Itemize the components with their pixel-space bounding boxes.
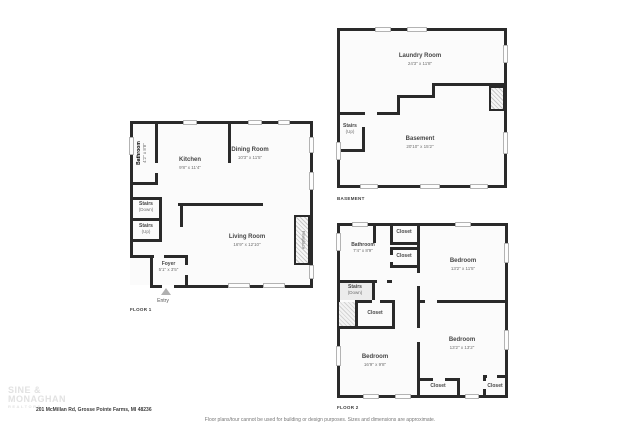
room-dims: 13'2" x 11'5" — [433, 266, 493, 272]
wall — [373, 223, 376, 243]
room-label-closet-top: Closet — [388, 229, 420, 235]
floor1-plan: Bathroom 4'2" x 8'8" Kitchen 9'8" x 11'4… — [128, 117, 323, 322]
window — [455, 222, 471, 227]
wall — [185, 255, 188, 265]
room-dims: (Down) — [130, 207, 162, 213]
room-label-closet-mid: Closet — [357, 310, 393, 316]
room-dims: 7'4" x 8'9" — [337, 248, 389, 254]
wall — [417, 300, 425, 303]
room-label-closet-bottom: Closet — [421, 383, 455, 389]
entry-label: Entry — [148, 298, 178, 304]
realtor-watermark-logo: SINE & MONAGHAN REALTORS — [8, 386, 66, 409]
wall — [130, 239, 162, 242]
room-label-laundry-room: Laundry Room 24'3" x 11'8" — [370, 53, 470, 66]
wall — [390, 265, 420, 268]
room-dims: (Up) — [337, 129, 363, 135]
window — [352, 222, 368, 227]
property-address: 201 McMillan Rd, Grosse Pointe Farms, MI… — [36, 407, 152, 413]
window — [309, 172, 314, 190]
wall — [483, 375, 486, 381]
window — [360, 184, 378, 189]
window — [395, 394, 411, 399]
wall — [337, 149, 365, 152]
room-dims: 16'9" x 12'10" — [217, 242, 277, 248]
room-name: Basement — [370, 136, 470, 144]
basement-plan: Laundry Room 24'3" x 11'8" Basement 20'1… — [335, 20, 510, 205]
wall — [417, 286, 420, 328]
room-name: Bedroom — [432, 337, 492, 345]
wall — [437, 300, 508, 303]
window — [503, 132, 508, 154]
room-label-basement: Basement 20'10" x 15'2" — [370, 136, 470, 149]
wall — [420, 378, 433, 381]
room-name: Closet — [388, 229, 420, 235]
wall — [390, 242, 420, 245]
window — [263, 283, 285, 288]
room-label-closet-upper: Closet — [388, 253, 420, 259]
window — [375, 27, 391, 32]
room-name: Bedroom — [433, 258, 493, 266]
window — [420, 184, 440, 189]
wall — [390, 247, 420, 250]
wall — [130, 197, 162, 200]
room-name: Fireplace — [301, 231, 306, 250]
entry-arrow-icon — [161, 288, 171, 295]
window — [336, 346, 341, 366]
room-dims: (Up) — [130, 229, 162, 235]
wall — [497, 375, 508, 378]
room-label-closet-corner: Closet — [482, 383, 508, 389]
wall — [130, 218, 162, 221]
window — [309, 137, 314, 153]
window — [407, 27, 427, 32]
room-label-foyer: Foyer 5'1" x 3'5" — [152, 261, 185, 273]
room-name: Closet — [482, 383, 508, 389]
window — [503, 45, 508, 63]
storage-hatch — [489, 86, 505, 111]
window — [278, 120, 290, 125]
floor-plan-page: Bathroom 4'2" x 8'8" Kitchen 9'8" x 11'4… — [0, 0, 640, 426]
window — [336, 142, 341, 160]
room-label-stairs-up: Stairs (Up) — [337, 123, 363, 135]
room-label-bedroom-right: Bedroom 13'2" x 13'2" — [432, 337, 492, 350]
room-label-stairs-down: Stairs (Down) — [337, 284, 373, 296]
wall — [337, 112, 365, 115]
floor2-tag: FLOOR 2 — [337, 405, 359, 410]
room-dims: 16'9" x 9'8" — [345, 362, 405, 368]
window — [363, 394, 379, 399]
room-label-stairs-down: Stairs (Down) — [130, 201, 162, 213]
room-dims: 5'1" x 3'5" — [152, 267, 185, 273]
floor2-plan: Bathroom 7'4" x 8'9" Closet Closet Bedro… — [335, 218, 513, 416]
window — [129, 137, 134, 155]
room-name: Laundry Room — [370, 53, 470, 61]
room-dims: 9'8" x 11'4" — [160, 165, 220, 171]
wall — [358, 300, 372, 303]
wall — [337, 326, 395, 329]
room-dims: 13'2" x 13'2" — [432, 345, 492, 351]
watermark-line2: MONAGHAN — [8, 395, 66, 404]
window — [248, 120, 262, 125]
window — [183, 120, 197, 125]
room-name: Closet — [421, 383, 455, 389]
wall — [417, 342, 420, 398]
room-label-stairs-up: Stairs (Up) — [130, 223, 162, 235]
room-label-kitchen: Kitchen 9'8" x 11'4" — [160, 157, 220, 170]
wall — [397, 95, 435, 98]
room-name: Living Room — [217, 234, 277, 242]
stairs-hatch — [339, 302, 355, 326]
window — [309, 265, 314, 279]
room-label-fireplace: Fireplace — [296, 217, 306, 263]
wall — [178, 203, 263, 206]
wall — [130, 182, 158, 185]
window — [470, 184, 488, 189]
room-dims: 10'3" x 11'5" — [220, 155, 280, 161]
disclaimer-text: Floor plans/tour cannot be used for buil… — [0, 417, 640, 423]
window — [465, 394, 479, 399]
room-dims: (Down) — [337, 290, 373, 296]
room-name: Bedroom — [345, 354, 405, 362]
room-label-dining-room: Dining Room 10'3" x 11'5" — [220, 147, 280, 160]
room-label-bathroom: Bathroom 4'2" x 8'8" — [136, 131, 152, 175]
room-dims: 4'2" x 8'8" — [142, 131, 147, 175]
basement-tag: BASEMENT — [337, 196, 365, 201]
wall — [397, 95, 400, 115]
room-name: Dining Room — [220, 147, 280, 155]
room-name: Closet — [388, 253, 420, 259]
window — [504, 330, 509, 350]
room-label-bedroom-top: Bedroom 13'2" x 11'5" — [433, 258, 493, 271]
wall — [180, 206, 183, 227]
wall — [337, 28, 340, 188]
window — [504, 243, 509, 263]
floor1-tag: FLOOR 1 — [130, 307, 152, 312]
wall — [155, 121, 158, 163]
wall — [483, 389, 486, 398]
room-label-bathroom: Bathroom 7'4" x 8'9" — [337, 242, 389, 254]
wall — [457, 378, 460, 398]
room-dims: 24'3" x 11'8" — [370, 61, 470, 67]
room-name: Closet — [357, 310, 393, 316]
room-label-bedroom-left: Bedroom 16'9" x 9'8" — [345, 354, 405, 367]
room-label-living-room: Living Room 16'9" x 12'10" — [217, 234, 277, 247]
wall — [387, 280, 392, 283]
room-name: Kitchen — [160, 157, 220, 165]
floor-area — [337, 28, 507, 188]
window — [228, 283, 250, 288]
room-dims: 20'10" x 15'2" — [370, 144, 470, 150]
